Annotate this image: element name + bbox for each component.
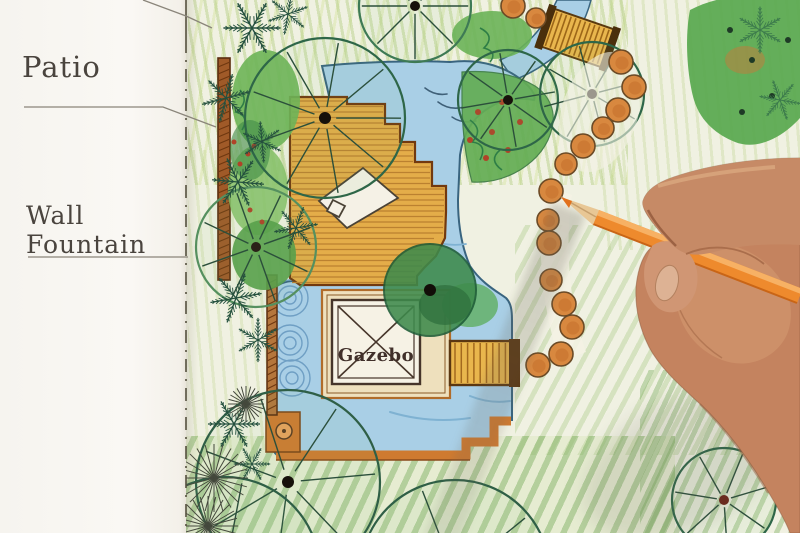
hand-and-pencil	[0, 0, 800, 533]
pencil-tip	[561, 197, 572, 208]
plan-photo: Patio Wall Fountain Gazebo	[0, 0, 800, 533]
